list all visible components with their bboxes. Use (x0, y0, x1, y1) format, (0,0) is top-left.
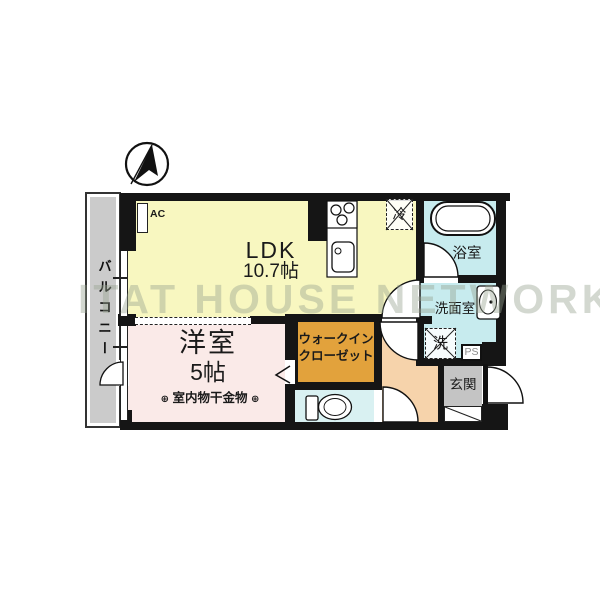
wic-door-chevron (276, 366, 290, 383)
western-room-name: 洋室 (158, 328, 258, 359)
ac-label: AC (150, 208, 174, 220)
ldk-name: LDK (221, 237, 321, 263)
laundry-hardware-note: ⊕ 室内物干金物 ⊕ (140, 391, 280, 406)
kitchen-sink-icon (332, 242, 354, 272)
anchor-symbol-left: ⊕ (161, 394, 169, 405)
north-arrow-icon (126, 143, 168, 185)
bathroom-label: 浴室 (438, 246, 496, 263)
floor-plan: バルコニー (0, 0, 600, 600)
western-room-size: 5帖 (158, 359, 258, 385)
balcony-door-arc (100, 362, 123, 385)
watermark-text: ITAT HOUSE NETWORK (78, 276, 600, 323)
entrance-label: 玄関 (442, 377, 484, 393)
kitchen-counter (327, 201, 357, 277)
wic-label-line1: ウォークイン (296, 331, 376, 348)
hanger-note-text: 室内物干金物 (172, 391, 247, 405)
corridor-door-arc (380, 322, 418, 360)
refrigerator-label: 冷 (387, 206, 412, 222)
bathtub-icon (431, 202, 495, 235)
toilet-icon (306, 395, 352, 421)
entrance-door-arc (487, 367, 523, 403)
toilet-door-arc (383, 387, 418, 422)
wic-label-line2: クローゼット (296, 348, 376, 365)
entrance-step-diagonal (445, 407, 481, 421)
anchor-symbol-right: ⊕ (251, 394, 259, 405)
washing-machine-label: 洗 (426, 335, 455, 352)
wic-label: ウォークイン クローゼット (296, 331, 376, 365)
pipe-space-label: PS (461, 346, 482, 358)
